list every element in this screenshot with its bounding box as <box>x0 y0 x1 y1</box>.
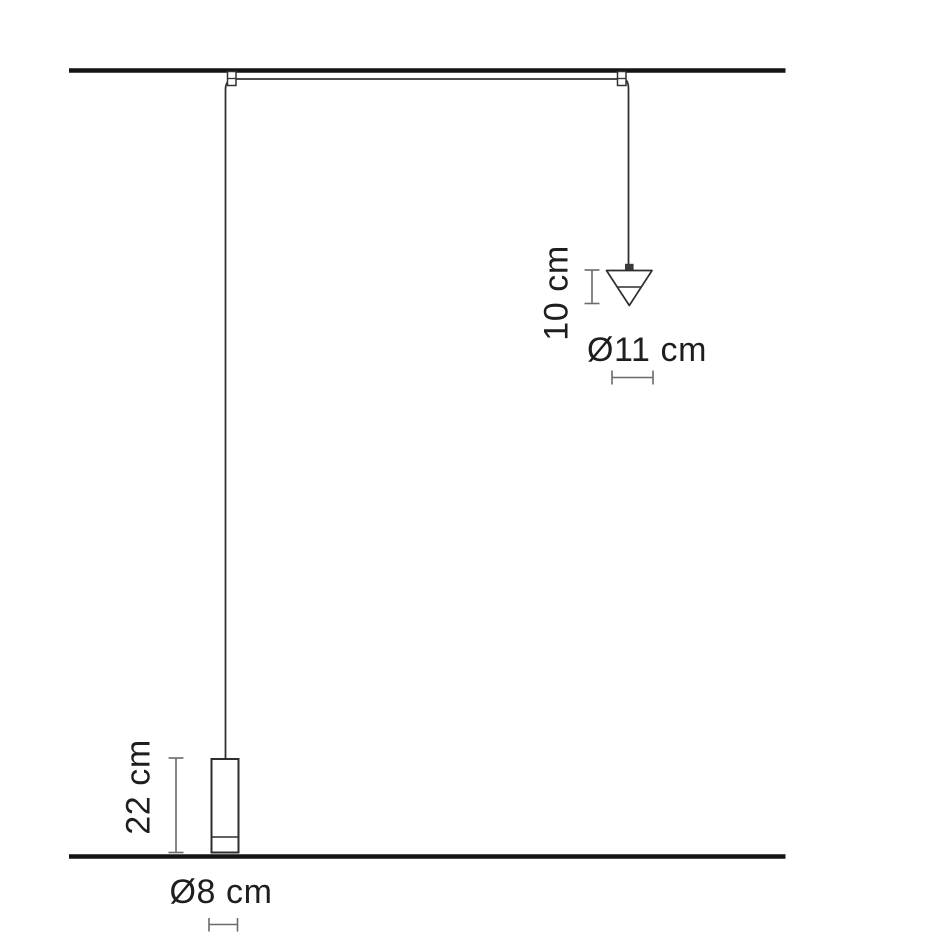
cylinder-shade <box>212 759 239 853</box>
cone-pendant-lamp <box>607 264 653 306</box>
pendant-lamp-dimension-diagram: 10 cm Ø11 cm 22 cm Ø8 cm <box>0 0 950 950</box>
cable-left-drop <box>226 79 620 759</box>
dimension-cylinder-diameter <box>209 918 238 932</box>
cable-right-drop <box>619 79 629 265</box>
dimension-cone-height <box>585 270 600 304</box>
ceiling-mount-left <box>228 72 237 86</box>
cylinder-diameter-label: Ø8 cm <box>141 871 301 913</box>
ceiling-mount-right <box>618 72 627 86</box>
cone-cable-connector <box>625 264 634 270</box>
dimension-cylinder-height <box>169 758 184 853</box>
dimension-cone-diameter <box>612 371 653 385</box>
cone-diameter-label: Ø11 cm <box>567 329 727 371</box>
cylinder-height-label: 22 cm <box>118 717 160 858</box>
cone-shade <box>607 271 653 306</box>
cylinder-pendant-lamp <box>212 759 239 853</box>
